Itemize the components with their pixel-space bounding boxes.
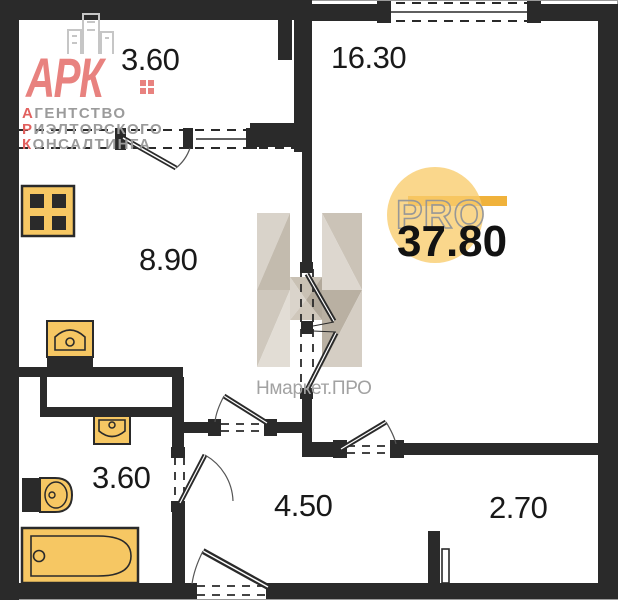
agency-name: АРК xyxy=(26,50,102,106)
door-entrance-icon xyxy=(186,551,277,599)
room-area-label-living: 16.30 xyxy=(331,40,406,76)
bathtub-icon xyxy=(22,528,138,583)
door-bathroom-icon xyxy=(171,447,233,512)
room-area-label-kitchen: 8.90 xyxy=(139,242,197,278)
agency-slogan: АГЕНТСТВО РИЭЛТОРСКОГО КОНСАЛТИНГА xyxy=(22,106,163,153)
agency-slogan-line-2: РИЭЛТОРСКОГО xyxy=(22,122,163,138)
nmarket-watermark-text: Нмаркет.ПРО xyxy=(256,378,372,400)
agency-slogan-line-1: АГЕНТСТВО xyxy=(22,106,163,122)
door-hallway-living-icon xyxy=(333,422,404,458)
kitchen-sink-icon xyxy=(47,321,93,367)
room-area-label-hallway: 4.50 xyxy=(274,488,332,524)
storage-door-leaf-icon xyxy=(442,549,449,583)
agency-slogan-line-3: КОНСАЛТИНГА xyxy=(22,137,163,153)
agency-logo: АРК АГЕНТСТВО РИЭЛТОРСКОГО КОНСАЛТИНГА xyxy=(12,6,202,111)
room-area-label-bathroom: 3.60 xyxy=(92,460,150,496)
window-living-icon xyxy=(377,1,541,23)
total-area-value: 37.80 xyxy=(397,217,507,266)
bathroom-sink-icon xyxy=(94,408,130,444)
door-kitchen-hallway-icon xyxy=(208,396,277,436)
toilet-icon xyxy=(22,478,72,512)
stove-icon xyxy=(22,186,74,236)
room-area-label-storage: 2.70 xyxy=(489,490,547,526)
pro-badge: PRO 37.80 xyxy=(380,150,618,270)
floor-plan: 3.60 16.30 8.90 3.60 4.50 2.70 Нмаркет.П… xyxy=(0,0,618,600)
